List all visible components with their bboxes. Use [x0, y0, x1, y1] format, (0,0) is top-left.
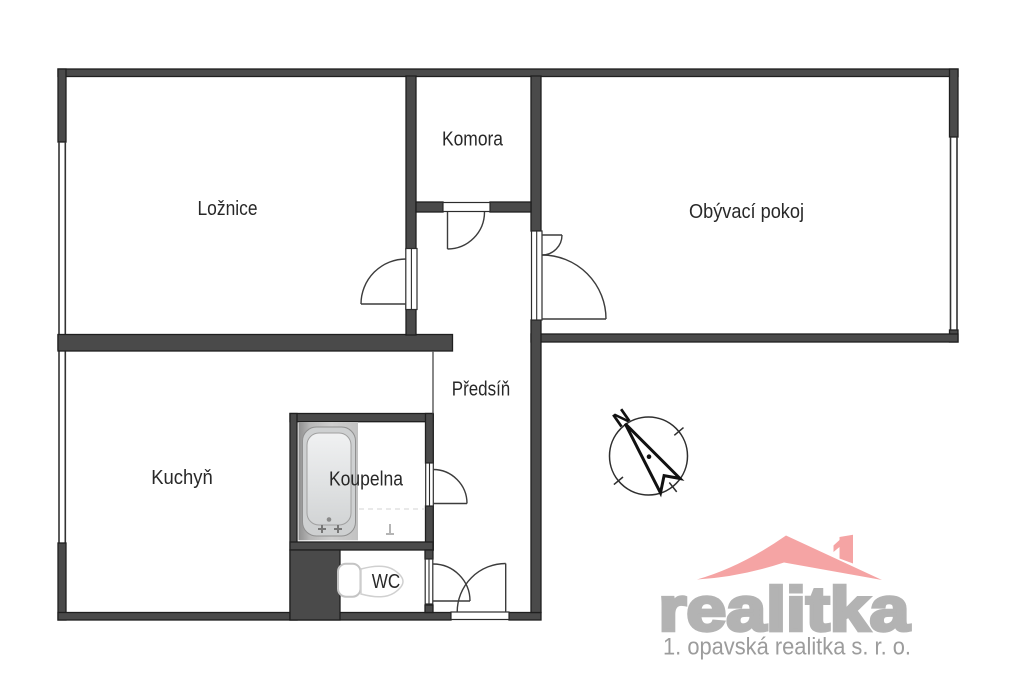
svg-text:1. opavská realitka s. r. o.: 1. opavská realitka s. r. o. — [663, 634, 911, 661]
svg-text:Předsíň: Předsíň — [452, 379, 511, 401]
svg-text:Obývací pokoj: Obývací pokoj — [689, 201, 804, 223]
svg-text:Komora: Komora — [442, 129, 504, 151]
svg-text:Ložnice: Ložnice — [198, 198, 258, 220]
svg-text:Koupelna: Koupelna — [329, 469, 404, 491]
svg-text:WC: WC — [372, 571, 401, 593]
svg-text:Kuchyň: Kuchyň — [151, 467, 213, 489]
